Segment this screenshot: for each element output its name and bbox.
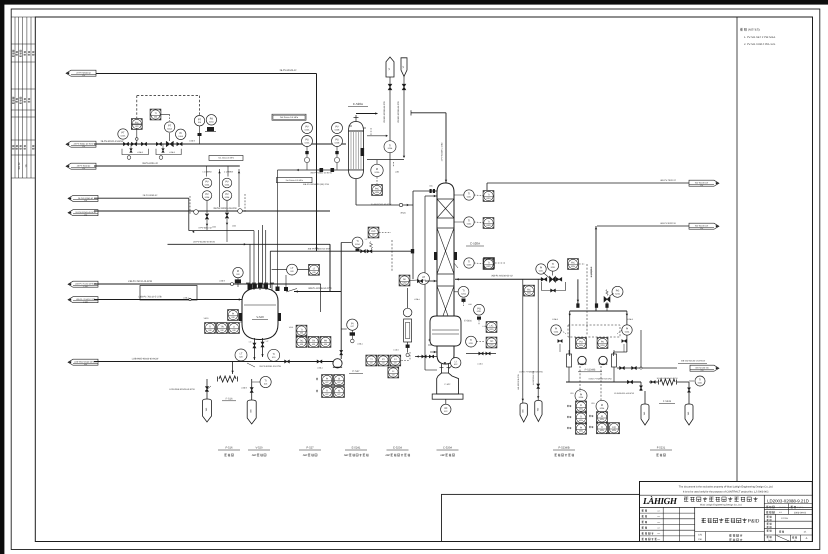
svg-text:PV: PV: [225, 193, 229, 196]
svg-text:TI: TI: [468, 220, 471, 223]
svg-text:ABF: ABF: [440, 454, 445, 457]
svg-text:A: A: [806, 537, 808, 540]
svg-text:520A: 520A: [121, 135, 126, 138]
svg-text:WD-92136-1W: WD-92136-1W: [695, 225, 708, 228]
svg-text:PI: PI: [580, 426, 583, 429]
svg-text:PV: PV: [205, 193, 209, 196]
svg-text:A-WD-7Y-92043+63-37W: A-WD-7Y-92043+63-37W: [519, 371, 543, 374]
svg-text:2003-09-02: 2003-09-02: [794, 511, 807, 514]
svg-text:5201: 5201: [486, 197, 490, 200]
svg-text:2. PV-521 0.8M # PRL-521.: 2. PV-521 0.8M # PRL-521.: [744, 43, 776, 46]
svg-text:ЖB-PV-9202-W: ЖB-PV-9202-W: [660, 222, 676, 225]
svg-text:Set Press=0.5 MPa: Set Press=0.5 MPa: [286, 179, 304, 182]
svg-text:L3B-PV-76132-43-9CW: L3B-PV-76132-43-9CW: [128, 280, 153, 283]
svg-text:F-522: F-522: [445, 383, 451, 386]
svg-text:5234: 5234: [600, 418, 604, 421]
svg-text:TI: TI: [370, 358, 372, 361]
svg-text:520: 520: [154, 116, 157, 119]
svg-text:520: 520: [324, 343, 327, 346]
svg-text:PR: PR: [324, 340, 328, 343]
svg-text:TI: TI: [487, 221, 489, 224]
svg-text:PI: PI: [540, 267, 543, 270]
svg-text:ЖB-PL-92136-S2-42: ЖB-PL-92136-S2-42: [491, 275, 513, 278]
svg-text:3R(A): 3R(A): [400, 212, 406, 215]
svg-text:520A: 520A: [355, 243, 360, 246]
svg-text:527: 527: [325, 393, 328, 396]
svg-text:520: 520: [220, 329, 223, 332]
svg-text:1:2: 1:2: [794, 539, 797, 542]
svg-text:AT: AT: [422, 276, 425, 279]
svg-text:93-2348: 93-2348: [779, 506, 786, 509]
svg-text:TI: TI: [462, 289, 465, 292]
svg-text:28-PS-92041-43-9CW: 28-PS-92041-43-9CW: [74, 143, 94, 146]
svg-text:WI: WI: [444, 407, 447, 410]
svg-text:5202: 5202: [486, 224, 490, 227]
svg-text:E-5231: E-5231: [464, 320, 472, 323]
svg-text:3L-49-92(3-E)-63-9CW: 3L-49-92(3-E)-63-9CW: [371, 203, 392, 206]
svg-text:PI: PI: [232, 313, 235, 316]
svg-text:TI: TI: [580, 416, 582, 419]
svg-text:PI: PI: [237, 270, 240, 273]
svg-text:L/2B-9W5-92043-63-9CW: L/2B-9W5-92043-63-9CW: [74, 361, 97, 364]
svg-text:10-WD-92043+63-9CW: 10-WD-92043+63-9CW: [657, 377, 678, 380]
svg-text:L/2B-9: L/2B-9: [241, 387, 247, 390]
svg-text:TI: TI: [487, 262, 489, 265]
svg-text:ЖB-PV-7920-37: ЖB-PV-7920-37: [660, 179, 677, 182]
svg-text:PI: PI: [555, 328, 558, 331]
svg-text:PT: PT: [198, 118, 202, 121]
svg-text:PI: PI: [376, 168, 379, 171]
svg-text:527: 527: [325, 381, 328, 384]
svg-text:L3B-PV-76132-43-9CW: L3B-PV-76132-43-9CW: [75, 283, 96, 286]
svg-text:520A: 520A: [305, 129, 310, 132]
svg-text:ABF: ABF: [303, 454, 308, 457]
svg-text:5234: 5234: [579, 419, 583, 422]
svg-text:1 1/2B9W: 1 1/2B9W: [202, 171, 211, 174]
svg-text:PI: PI: [580, 393, 583, 396]
svg-text:L3B-PL-76142-E-37B: L3B-PL-76142-E-37B: [139, 296, 162, 299]
svg-text:Set Press=0.5 MPa: Set Press=0.5 MPa: [280, 116, 299, 119]
svg-text:F-516: F-516: [226, 398, 233, 401]
svg-text:TI: TI: [264, 380, 267, 383]
svg-text:516A: 516A: [209, 120, 214, 123]
svg-text:527: 527: [370, 362, 373, 365]
svg-text:WD: WD: [522, 409, 525, 413]
svg-text:520B: 520B: [335, 129, 340, 132]
svg-text:28-WD-92036-66-37D: 28-WD-92036-66-37D: [383, 101, 386, 123]
svg-text:LI: LI: [455, 360, 457, 363]
svg-text:4-PV-9261-42: 4-PV-9261-42: [198, 227, 212, 230]
svg-text:5234: 5234: [579, 430, 583, 433]
svg-text:520: 520: [231, 316, 234, 319]
svg-text:ScL Max.0.5 MPa: ScL Max.0.5 MPa: [218, 157, 235, 160]
svg-text:E-520A: E-520A: [353, 102, 363, 106]
svg-text:PI: PI: [351, 322, 354, 325]
svg-text:5234: 5234: [612, 429, 616, 432]
svg-text:1/N: 1/N: [698, 534, 702, 537]
svg-text:PS: PS: [305, 139, 309, 142]
svg-text:AE: AE: [403, 278, 407, 281]
svg-text:TI: TI: [389, 144, 392, 147]
svg-text:E-5241: E-5241: [352, 447, 361, 450]
svg-text:28-PW-92043-43-9CW: 28-PW-92043-43-9CW: [75, 211, 95, 214]
svg-text:527: 527: [337, 393, 340, 396]
svg-text:LT: LT: [240, 353, 243, 356]
svg-text:FQ: FQ: [612, 426, 615, 429]
svg-text:WD: WD: [250, 409, 253, 413]
svg-text:520: 520: [135, 125, 138, 128]
svg-text:TIC: TIC: [490, 340, 494, 343]
svg-text:PU: PU: [601, 341, 605, 344]
svg-text:PU: PU: [579, 341, 583, 344]
svg-text:P-5234/B: P-5234/B: [585, 369, 596, 372]
svg-text:WD: WD: [205, 407, 208, 411]
svg-text:ABF: ABF: [385, 454, 390, 457]
svg-text:P-527: P-527: [306, 447, 314, 450]
svg-text:520: 520: [300, 343, 303, 346]
svg-text:TI: TI: [470, 339, 473, 342]
svg-text:ЖB-PV-92045-S2-(9E)-37W: ЖB-PV-92045-S2-(9E)-37W: [303, 183, 329, 186]
svg-text:5234: 5234: [600, 429, 604, 432]
svg-text:TI: TI: [326, 390, 328, 393]
svg-text:ABF: ABF: [344, 454, 349, 457]
svg-text:PV: PV: [335, 126, 339, 129]
svg-text:5234: 5234: [579, 344, 583, 347]
svg-text:F-5231: F-5231: [663, 400, 672, 403]
svg-text:ЖB-PT-92041-43-9CW: ЖB-PT-92041-43-9CW: [310, 171, 331, 174]
svg-text:P-527: P-527: [353, 370, 360, 373]
svg-text:PS: PS: [210, 117, 214, 120]
svg-text:5231: 5231: [527, 292, 531, 295]
svg-text:Wuxi Lahigh Engineering Design: Wuxi Lahigh Engineering Design Co.,Ltd.: [700, 503, 742, 506]
svg-text:527: 527: [337, 381, 340, 384]
svg-text:516A: 516A: [167, 128, 172, 131]
svg-text:TI: TI: [468, 193, 471, 196]
svg-text:FI: FI: [394, 358, 396, 361]
svg-text:520A: 520A: [375, 171, 380, 174]
svg-text:WD: WD: [536, 407, 539, 411]
svg-text:TIC: TIC: [300, 340, 304, 343]
svg-text:28-WD-92036-66-37D: 28-WD-92036-66-37D: [397, 101, 400, 123]
svg-text:TI: TI: [468, 261, 471, 264]
svg-text:PG: PG: [616, 289, 620, 292]
svg-text:5234: 5234: [579, 408, 583, 411]
svg-text:TI: TI: [209, 326, 211, 329]
svg-text:520: 520: [232, 329, 235, 332]
svg-text:28-PV-92285-S3-9CW: 28-PV-92285-S3-9CW: [193, 241, 216, 244]
svg-text:(NOTES):: (NOTES):: [748, 28, 760, 32]
svg-text:5234: 5234: [571, 265, 575, 268]
svg-text:PI: PI: [326, 378, 329, 381]
svg-text:527: 527: [394, 362, 397, 365]
svg-text:L/2B-9: L/2B-9: [219, 280, 225, 283]
svg-text:520A: 520A: [375, 191, 380, 194]
svg-text:527: 527: [372, 234, 375, 237]
svg-text:L/2B-9: L/2B-9: [137, 151, 143, 154]
svg-text:TI: TI: [300, 328, 302, 331]
svg-text:FI: FI: [601, 415, 603, 418]
svg-text:527: 527: [392, 374, 395, 377]
svg-text:C-520A: C-520A: [443, 447, 452, 450]
svg-text:ЖB-PV-92045-S2-37W: ЖB-PV-92045-S2-37W: [308, 248, 331, 251]
svg-text:520A: 520A: [305, 142, 310, 145]
svg-text:520: 520: [312, 271, 315, 274]
svg-text:520: 520: [300, 332, 303, 335]
svg-text:5231: 5231: [489, 328, 493, 331]
svg-text:5203: 5203: [486, 265, 490, 268]
svg-text:520: 520: [312, 343, 315, 346]
svg-text:516A: 516A: [178, 135, 183, 138]
svg-text:FI: FI: [580, 404, 582, 407]
svg-text:520: 520: [208, 329, 211, 332]
svg-text:P-5234/B: P-5234/B: [558, 447, 569, 450]
svg-text:V-520: V-520: [255, 447, 263, 450]
svg-text:PI: PI: [601, 404, 604, 407]
svg-text:TR: TR: [312, 340, 315, 343]
svg-text:0%(9%): 0%(9%): [797, 506, 804, 509]
svg-text:TI: TI: [154, 112, 156, 115]
svg-text:WD-92136-1W: WD-92136-1W: [695, 182, 708, 185]
svg-text:TR: TR: [220, 326, 223, 329]
svg-text:527: 527: [382, 362, 385, 365]
svg-text:The document is the exclusive: The document is the exclusive property o…: [679, 485, 774, 488]
svg-text:5234: 5234: [600, 344, 604, 347]
svg-text:PDI: PDI: [591, 402, 595, 405]
svg-text:TI: TI: [601, 426, 603, 429]
svg-text:WD-92136-1W: WD-92136-1W: [695, 367, 708, 370]
svg-text:1 1/2B9W: 1 1/2B9W: [224, 171, 233, 174]
svg-text:PT: PT: [168, 125, 172, 128]
svg-text:WD: WD: [643, 411, 646, 415]
svg-text:PDI: PDI: [570, 392, 574, 395]
svg-text:L/2B-9: L/2B-9: [477, 363, 482, 366]
svg-text:28-PV-92045-42: 28-PV-92045-42: [280, 69, 297, 72]
svg-text:28-PW-92043-43-9CW: 28-PW-92043-43-9CW: [213, 207, 237, 210]
svg-text:LD2003-02088-9.21D: LD2003-02088-9.21D: [767, 498, 809, 503]
svg-text:TI: TI: [273, 353, 276, 356]
svg-text:DWG: DWG: [768, 539, 773, 542]
svg-text:TI: TI: [552, 263, 555, 266]
svg-text:ABF: ABF: [252, 454, 257, 457]
svg-text:LÀHIGH: LÀHIGH: [642, 496, 678, 506]
svg-text:FIC: FIC: [527, 288, 531, 291]
svg-text:5202: 5202: [402, 282, 406, 285]
svg-text:PIC: PIC: [372, 230, 376, 233]
svg-text:1/2B-9: 1/2B-9: [393, 349, 398, 352]
svg-text:C-520A: C-520A: [470, 242, 480, 246]
svg-text:AR-92038 B-37B: AR-92038 B-37B: [517, 374, 520, 390]
svg-text:28-PS-9204-42: 28-PS-9204-42: [77, 165, 91, 168]
svg-text:LI: LI: [233, 326, 235, 329]
svg-text:PT: PT: [121, 132, 125, 135]
svg-text:PI: PI: [180, 132, 183, 135]
svg-text:F-516: F-516: [225, 447, 233, 450]
svg-text:L/2B-9W5-92043-63-9CW: L/2B-9W5-92043-63-9CW: [169, 388, 195, 391]
svg-text:1/2B-9: 1/2B-9: [552, 318, 558, 321]
svg-text:LIC: LIC: [490, 325, 494, 328]
svg-text:SH 02: SH 02: [18, 162, 21, 170]
svg-text:4-PV-9204R-L-1.5M: 4-PV-9204R-L-1.5M: [441, 142, 444, 161]
svg-text:PV: PV: [205, 181, 209, 184]
svg-text:PG: PG: [477, 307, 481, 310]
svg-text:L/2B-#: L/2B-#: [414, 298, 421, 301]
svg-text:Ж-L/9203-9: Ж-L/9203-9: [590, 266, 593, 278]
svg-text:WD: WD: [687, 411, 690, 415]
svg-text:L/2B-#: L/2B-#: [357, 343, 364, 346]
svg-text:28-PS-9204-42: 28-PS-9204-42: [142, 162, 158, 165]
svg-text:1/2B-9: 1/2B-9: [627, 318, 633, 321]
svg-text:V520: V520: [289, 326, 293, 329]
svg-text:PV: PV: [225, 181, 229, 184]
svg-text:F-5231: F-5231: [657, 447, 666, 450]
svg-text:28-PW-92043-42: 28-PW-92043-42: [78, 197, 94, 200]
svg-text:ЖB-WD-92136-1-63-9CW: ЖB-WD-92136-1-63-9CW: [681, 360, 705, 363]
svg-text:TI: TI: [699, 379, 702, 382]
svg-text:4-WD-7Y-92043+63-37W: 4-WD-7Y-92043+63-37W: [588, 378, 611, 381]
svg-text:L/2B-9: L/2B-9: [169, 151, 175, 154]
svg-text:LI: LI: [392, 370, 394, 373]
svg-text:TI: TI: [356, 240, 359, 243]
svg-text:28-PV-92045-42: 28-PV-92045-42: [76, 72, 91, 75]
svg-text:28-PS-92081-S3-37W: 28-PS-92081-S3-37W: [259, 365, 281, 368]
svg-text:V-520: V-520: [256, 315, 264, 319]
svg-text:1/2B-9: 1/2B-9: [189, 140, 195, 143]
svg-text:P&ID: P&ID: [748, 518, 760, 524]
svg-text:1274%: 1274%: [781, 517, 788, 520]
svg-text:L3B-PL-76142-E-37B: L3B-PL-76142-E-37B: [76, 298, 96, 301]
svg-text:PIC: PIC: [375, 188, 379, 191]
svg-text:520B: 520B: [335, 142, 340, 145]
svg-text:SI: SI: [338, 378, 341, 381]
svg-text:1. PV-521 SET # PW-521A.: 1. PV-521 SET # PW-521A.: [744, 36, 776, 39]
svg-text:PV: PV: [305, 126, 309, 129]
svg-text:P&I: P&I: [698, 538, 702, 541]
svg-text:PS: PS: [335, 139, 339, 142]
svg-text:PI: PI: [382, 358, 385, 361]
svg-text:28-PS-92041-43-9CW: 28-PS-92041-43-9CW: [101, 140, 125, 143]
svg-text:TI: TI: [487, 194, 489, 197]
svg-text:PI: PI: [626, 328, 629, 331]
svg-text:28-PV-9280-42: 28-PV-9280-42: [143, 194, 158, 197]
svg-text:5231: 5231: [489, 344, 493, 347]
svg-text:L/2B-9W5-92043-63-9CW: L/2B-9W5-92043-63-9CW: [132, 358, 159, 361]
svg-text:FIC: FIC: [571, 262, 575, 265]
svg-text:L/2B-#: L/2B-#: [317, 366, 324, 369]
svg-text:XI: XI: [338, 390, 341, 393]
svg-text:10-WSB-92L+63-9CW: 10-WSB-92L+63-9CW: [614, 392, 634, 395]
svg-text:E-5234: E-5234: [393, 447, 402, 450]
svg-text:It is to be used only for the: It is to be used only for the purpose of…: [683, 491, 769, 494]
svg-text:ЖB-PL-92136-S2-37W: ЖB-PL-92136-S2-37W: [308, 287, 332, 290]
svg-text:LT: LT: [291, 267, 294, 270]
